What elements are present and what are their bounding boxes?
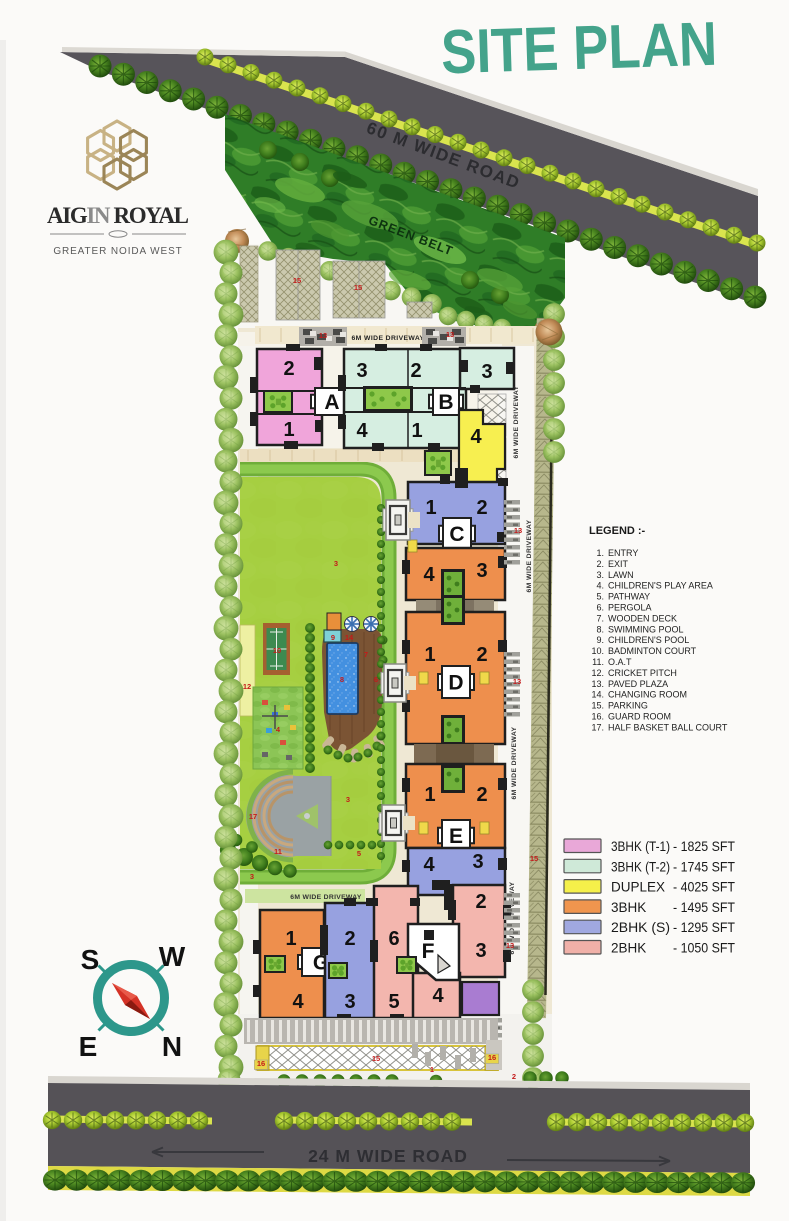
- svg-text:17.: 17.: [591, 722, 604, 732]
- svg-text:11.: 11.: [592, 657, 604, 667]
- svg-text:- 1050 SFT: - 1050 SFT: [673, 941, 735, 956]
- svg-text:E: E: [79, 1031, 98, 1062]
- svg-text:1: 1: [424, 784, 435, 806]
- svg-text:CHILDREN'S PLAY AREA: CHILDREN'S PLAY AREA: [608, 581, 713, 591]
- svg-text:PATHWAY: PATHWAY: [608, 592, 650, 602]
- svg-text:LAWN: LAWN: [608, 570, 634, 580]
- svg-text:3: 3: [475, 940, 486, 962]
- svg-text:13.: 13.: [591, 679, 604, 689]
- svg-text:2BHK: 2BHK: [611, 941, 646, 956]
- svg-text:B: B: [438, 391, 453, 414]
- svg-text:AIGIN ROYAL: AIGIN ROYAL: [47, 203, 189, 228]
- svg-text:3: 3: [346, 795, 350, 804]
- svg-text:14: 14: [345, 633, 354, 642]
- svg-text:2: 2: [512, 1072, 516, 1081]
- svg-text:EXIT: EXIT: [608, 559, 629, 569]
- svg-text:7: 7: [364, 650, 368, 659]
- svg-text:5: 5: [388, 991, 399, 1013]
- svg-text:S: S: [81, 944, 100, 975]
- svg-text:3.: 3.: [596, 570, 604, 580]
- svg-text:N: N: [162, 1031, 182, 1062]
- svg-text:- 4025 SFT: - 4025 SFT: [673, 880, 735, 895]
- svg-text:3: 3: [356, 360, 367, 382]
- svg-text:LEGEND :-: LEGEND :-: [589, 525, 646, 537]
- svg-text:5.: 5.: [596, 592, 604, 602]
- svg-text:15: 15: [530, 854, 538, 863]
- svg-text:GUARD ROOM: GUARD ROOM: [608, 712, 671, 722]
- svg-text:13: 13: [506, 941, 514, 950]
- svg-text:13: 13: [514, 526, 522, 535]
- svg-text:- 1495 SFT: - 1495 SFT: [673, 900, 735, 915]
- svg-text:F: F: [422, 940, 435, 963]
- svg-text:24 M WIDE ROAD: 24 M WIDE ROAD: [308, 1146, 468, 1166]
- svg-text:11: 11: [274, 847, 282, 856]
- svg-text:2: 2: [476, 644, 487, 666]
- svg-text:3: 3: [334, 559, 338, 568]
- svg-text:6M WIDE DRIVEWAY: 6M WIDE DRIVEWAY: [352, 335, 425, 342]
- svg-text:6: 6: [388, 928, 399, 950]
- svg-text:BADMINTON COURT: BADMINTON COURT: [608, 646, 697, 656]
- svg-text:15.: 15.: [591, 701, 604, 711]
- svg-text:1: 1: [430, 1065, 434, 1074]
- svg-text:5: 5: [357, 849, 361, 858]
- svg-text:GREATER NOIDA WEST: GREATER NOIDA WEST: [53, 246, 182, 257]
- svg-text:4: 4: [423, 854, 435, 876]
- svg-text:CHANGING ROOM: CHANGING ROOM: [608, 690, 687, 700]
- svg-text:10: 10: [273, 646, 281, 655]
- svg-text:1: 1: [425, 497, 436, 519]
- svg-text:12.: 12.: [591, 668, 604, 678]
- svg-text:3BHK (T-2): 3BHK (T-2): [611, 859, 670, 874]
- svg-text:1.: 1.: [596, 548, 604, 558]
- svg-text:1: 1: [283, 419, 294, 441]
- svg-text:3: 3: [250, 872, 254, 881]
- svg-text:12: 12: [243, 682, 251, 691]
- svg-text:7.: 7.: [596, 613, 604, 623]
- svg-text:13: 13: [513, 677, 521, 686]
- svg-text:4: 4: [423, 564, 435, 586]
- svg-text:4: 4: [432, 985, 444, 1007]
- svg-text:3: 3: [481, 361, 492, 383]
- svg-text:2: 2: [344, 928, 355, 950]
- svg-text:16: 16: [488, 1053, 496, 1062]
- svg-text:CHILDREN'S POOL: CHILDREN'S POOL: [608, 635, 689, 645]
- svg-text:PARKING: PARKING: [608, 701, 648, 711]
- svg-text:SWIMMING POOL: SWIMMING POOL: [608, 624, 684, 634]
- svg-text:- 1825 SFT: - 1825 SFT: [673, 839, 735, 854]
- svg-text:15: 15: [372, 1054, 380, 1063]
- svg-text:4: 4: [292, 991, 304, 1013]
- svg-text:2BHK (S): 2BHK (S): [611, 920, 670, 935]
- svg-text:- 1295 SFT: - 1295 SFT: [673, 920, 735, 935]
- svg-text:9: 9: [331, 633, 335, 642]
- svg-text:CRICKET PITCH: CRICKET PITCH: [608, 668, 677, 678]
- svg-text:3BHK (T-1): 3BHK (T-1): [611, 839, 670, 854]
- svg-text:2: 2: [476, 497, 487, 519]
- svg-text:3BHK: 3BHK: [611, 900, 646, 915]
- svg-text:D: D: [448, 672, 463, 695]
- svg-text:A: A: [324, 391, 339, 414]
- svg-text:O.A.T: O.A.T: [608, 657, 632, 667]
- svg-text:4: 4: [356, 420, 368, 442]
- svg-text:3: 3: [476, 560, 487, 582]
- svg-text:4.: 4.: [596, 581, 604, 591]
- svg-text:2.: 2.: [596, 559, 604, 569]
- svg-text:PAVED PLAZA: PAVED PLAZA: [608, 679, 668, 689]
- svg-text:17: 17: [249, 812, 257, 821]
- svg-text:E: E: [449, 825, 463, 848]
- svg-text:SITE PLAN: SITE PLAN: [440, 10, 718, 88]
- svg-text:6.: 6.: [596, 603, 604, 613]
- svg-text:2: 2: [283, 358, 294, 380]
- svg-text:14.: 14.: [591, 690, 604, 700]
- svg-text:9.: 9.: [596, 635, 604, 645]
- svg-text:8.: 8.: [596, 624, 604, 634]
- svg-text:16: 16: [257, 1059, 265, 1068]
- svg-text:ENTRY: ENTRY: [608, 548, 638, 558]
- svg-text:15: 15: [354, 283, 362, 292]
- svg-text:2: 2: [410, 360, 421, 382]
- svg-text:13: 13: [319, 331, 327, 340]
- svg-text:6M WIDE DRIVEWAY: 6M WIDE DRIVEWAY: [526, 519, 533, 592]
- svg-text:10.: 10.: [591, 646, 604, 656]
- svg-text:1: 1: [285, 928, 296, 950]
- svg-text:2: 2: [476, 784, 487, 806]
- svg-text:DUPLEX: DUPLEX: [611, 880, 665, 895]
- svg-text:15: 15: [293, 276, 301, 285]
- svg-text:8: 8: [340, 675, 344, 684]
- svg-text:HALF BASKET BALL COURT: HALF BASKET BALL COURT: [608, 722, 728, 732]
- svg-text:1: 1: [411, 420, 422, 442]
- svg-text:1: 1: [424, 644, 435, 666]
- svg-text:WOODEN DECK: WOODEN DECK: [608, 613, 677, 623]
- svg-text:6M WIDE DRIVEWAY: 6M WIDE DRIVEWAY: [511, 726, 518, 799]
- svg-text:2: 2: [475, 891, 486, 913]
- svg-text:13: 13: [446, 330, 454, 339]
- svg-text:16.: 16.: [591, 712, 604, 722]
- svg-text:- 1745 SFT: - 1745 SFT: [673, 859, 735, 874]
- svg-text:W: W: [159, 941, 186, 972]
- svg-text:3: 3: [344, 991, 355, 1013]
- svg-text:C: C: [449, 523, 464, 546]
- svg-text:3: 3: [472, 851, 483, 873]
- svg-text:PERGOLA: PERGOLA: [608, 603, 652, 613]
- svg-text:6M WIDE DRIVEWAY: 6M WIDE DRIVEWAY: [513, 385, 520, 458]
- svg-text:4: 4: [470, 426, 482, 448]
